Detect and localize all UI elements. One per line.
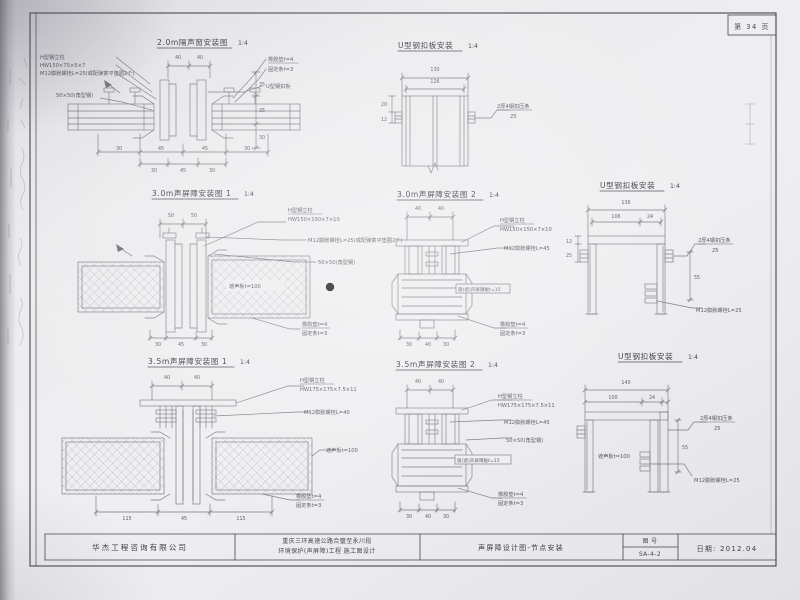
- dim-label: 30: [406, 514, 412, 520]
- label-fixer: 固定条t=3: [498, 499, 523, 507]
- dim-label: 30: [244, 146, 250, 152]
- dim-label: 136: [621, 200, 630, 206]
- figure-title: 2.0m隔声窗安装图: [157, 37, 228, 47]
- dim-label: 40: [415, 379, 421, 385]
- figure-scale: 1:4: [468, 43, 478, 50]
- dim-label: 50: [168, 213, 174, 219]
- label-column-spec: HW150×75×5×7: [40, 63, 85, 69]
- figure-title: 3.5m声屏障安装图 2: [396, 359, 475, 369]
- figure-title: 3.0m声屏障安装图 1: [152, 188, 231, 198]
- dim-label: 30: [201, 342, 207, 348]
- figure-title: U型钢扣板安装: [398, 40, 453, 50]
- figure-35m-barrier-1: 3.5m声屏障安装图 1 1:4 40 40: [62, 356, 358, 522]
- label-bolt: M12膨胀螺栓L=40: [304, 408, 350, 416]
- figure-title: 3.5m声屏障安装图 1: [148, 356, 227, 366]
- dim-label: 24: [647, 214, 653, 220]
- label-shield-panel: 遮声板t=100: [229, 282, 261, 290]
- label-clamp-strip: 2厚4钢扣压条: [497, 102, 530, 110]
- dim-label: 45: [202, 146, 208, 152]
- dim-label: 40: [175, 55, 181, 61]
- label-bolt: M12膨胀螺栓L=25: [696, 306, 742, 314]
- label-rubber: 橡胶垫t=4: [302, 320, 328, 328]
- label-h-column: H型钢立柱: [500, 216, 525, 224]
- label-clamp-strip: 2厚4钢扣压条: [698, 236, 731, 244]
- page-number-box: 第 34 页: [728, 15, 776, 35]
- dim-label: 40: [415, 206, 421, 212]
- label-fixer: 固定条t=3: [302, 329, 327, 337]
- dim-label: 20: [381, 102, 387, 108]
- label-fixer: 固定条t=3: [500, 329, 525, 337]
- figure-scale: 1:4: [238, 40, 248, 47]
- label-absorb-panel: 吸(遮)声屏障板t=15: [457, 457, 500, 464]
- label-clamp-length: 25: [510, 114, 517, 120]
- label-shield-panel: 遮声板t=100: [598, 452, 630, 460]
- faint-dim-marks: [746, 104, 754, 144]
- dim-label: 30: [259, 135, 265, 141]
- scanned-blueprint-page: 第 34 页 2.0m隔声窗安装图 1:4 H型钢立柱 HW150×75×5×7…: [0, 0, 800, 600]
- dim-label: 12: [566, 239, 572, 245]
- label-u-plate: U型钢扣板: [266, 82, 291, 90]
- label-column-spec: HW150×150×7×10: [288, 217, 340, 223]
- label-angle: 50×50(角型钢): [56, 91, 93, 99]
- figure-3m-barrier-1: 3.0m声屏障安装图 1 1:4 50 50 遮声板t=100: [78, 188, 403, 348]
- dim-label: 45: [158, 146, 164, 152]
- label-clamp-length: 25: [712, 248, 719, 254]
- margin-handwriting-marks: [8, 58, 27, 345]
- figure-title: U型钢扣板安装: [600, 180, 655, 190]
- dim-label: 30: [151, 168, 157, 174]
- figure-35m-barrier-2: 3.5m声屏障安装图 2 1:4 40 40 吸(遮)声屏障板t=15: [392, 359, 555, 520]
- dim-label: 40: [194, 375, 200, 381]
- label-rubber: 橡胶垫t=4: [500, 320, 526, 328]
- label-h-column: H型钢立柱: [498, 392, 523, 400]
- label-clamp-strip: 2厚4钢扣压条: [700, 414, 733, 422]
- figure-u-plate-top: U型钢扣板安装 1:4 130 126 20 12 2厚4钢扣压条 25: [381, 40, 532, 173]
- dim-label: 12: [381, 117, 387, 123]
- dim-label: 45: [180, 168, 186, 174]
- label-h-column: H型钢立柱: [40, 53, 65, 61]
- label-h-column: H型钢立柱: [288, 206, 313, 214]
- dim-label: 25: [566, 253, 572, 259]
- figure-scale: 1:4: [240, 359, 250, 366]
- dim-label: 40: [425, 342, 431, 348]
- dim-label: 30: [443, 342, 449, 348]
- dim-label: 50: [191, 213, 197, 219]
- drawing-canvas: 第 34 页 2.0m隔声窗安装图 1:4 H型钢立柱 HW150×75×5×7…: [0, 0, 800, 600]
- date-field: 日期: 2012.04: [697, 545, 758, 553]
- label-column-spec: HW175×175×7.5×11: [300, 387, 357, 393]
- sheet-title: 声屏障设计图-节点安装: [478, 543, 564, 552]
- label-bolt: M12膨胀螺栓L=25(或配弹簧平垫圈2个): [308, 236, 403, 244]
- label-fixer: 固定条t=3: [296, 501, 321, 509]
- label-angle: 50×50(角型钢): [318, 258, 355, 266]
- figure-title: 3.0m声屏障安装图 2: [397, 189, 476, 199]
- label-fixer: 固定条t=3: [268, 65, 293, 73]
- dim-label: 35: [259, 82, 265, 88]
- label-angle: 50×50(角型钢): [506, 436, 543, 444]
- figure-scale: 1:4: [489, 192, 499, 199]
- dim-label: 106: [611, 214, 620, 220]
- drawing-no: SA-4-2: [639, 551, 661, 558]
- drawing-no-label: 图 号: [642, 538, 657, 545]
- dim-label: 45: [178, 342, 184, 348]
- label-rubber: 橡胶垫t=4: [296, 492, 322, 500]
- ink-dot: [326, 283, 334, 291]
- dim-label: 55: [682, 445, 688, 451]
- dim-label: 30: [406, 342, 412, 348]
- dim-label: 140: [621, 380, 630, 386]
- dim-label: 24: [649, 395, 655, 401]
- figure-title: U型钢扣板安装: [618, 351, 673, 361]
- label-absorb-panel: 吸(遮)声屏障板t=15: [458, 286, 501, 293]
- figure-2m-window: 2.0m隔声窗安装图 1:4 H型钢立柱 HW150×75×5×7 M12膨胀螺…: [40, 37, 300, 174]
- dim-label: 45: [181, 516, 187, 522]
- dim-label: 115: [236, 516, 245, 522]
- label-column-spec: HW150×150×7×10: [500, 227, 552, 233]
- dim-label: 115: [122, 516, 131, 522]
- dim-label: 30: [209, 168, 215, 174]
- dim-label: 55: [694, 275, 700, 281]
- project-name-line1: 重庆三环高速公路合璧至永川段: [282, 537, 372, 545]
- dim-label: 100: [608, 395, 617, 401]
- label-shield-panel: 遮声板t=100: [326, 446, 358, 454]
- figure-scale: 1:4: [244, 191, 254, 198]
- figure-3m-barrier-2: 3.0m声屏障安装图 2 1:4 40 40 吸(遮)声屏障板t=15: [392, 189, 552, 348]
- dim-label: 35: [259, 108, 265, 114]
- label-rubber: 橡胶垫t=4: [498, 490, 524, 498]
- dim-label: 40: [438, 206, 444, 212]
- dim-label: 30: [116, 146, 122, 152]
- figure-scale: 1:4: [488, 362, 498, 369]
- title-block: 华杰工程咨询有限公司 重庆三环高速公路合璧至永川段 环境保护(声屏障)工程 施工…: [45, 534, 776, 560]
- label-bolt: M12膨胀螺栓L=45: [504, 418, 550, 426]
- figure-u-channel-bottom: U型钢扣板安装 1:4 140 100 24 遮声板t=100: [577, 351, 740, 492]
- figure-u-channel-mid: U型钢扣板安装 1:4 136 106 24 55: [566, 180, 742, 314]
- dim-label: 30: [443, 514, 449, 520]
- project-name-line2: 环境保护(声屏障)工程 施工图设计: [278, 547, 375, 555]
- page-number: 第 34 页: [734, 22, 770, 31]
- label-clamp-length: 25: [714, 426, 721, 432]
- label-rubber: 橡胶垫t=4: [268, 55, 294, 63]
- label-h-column: H型钢立柱: [300, 376, 325, 384]
- dim-label: 130: [430, 67, 439, 73]
- dim-label: 40: [425, 514, 431, 520]
- dim-label: 40: [164, 375, 170, 381]
- dim-label: 40: [438, 379, 444, 385]
- label-column-spec: HW175×175×7.5×11: [498, 403, 555, 409]
- figure-scale: 1:4: [688, 354, 698, 361]
- company-name: 华杰工程咨询有限公司: [92, 542, 188, 552]
- dim-label: 40: [197, 55, 203, 61]
- dim-label: 126: [430, 79, 439, 85]
- label-bolt: M12膨胀螺栓L=25: [694, 476, 740, 484]
- figure-scale: 1:4: [670, 183, 680, 190]
- label-bolt: M12膨胀螺栓L=45: [504, 244, 550, 252]
- dim-label: 30: [155, 342, 161, 348]
